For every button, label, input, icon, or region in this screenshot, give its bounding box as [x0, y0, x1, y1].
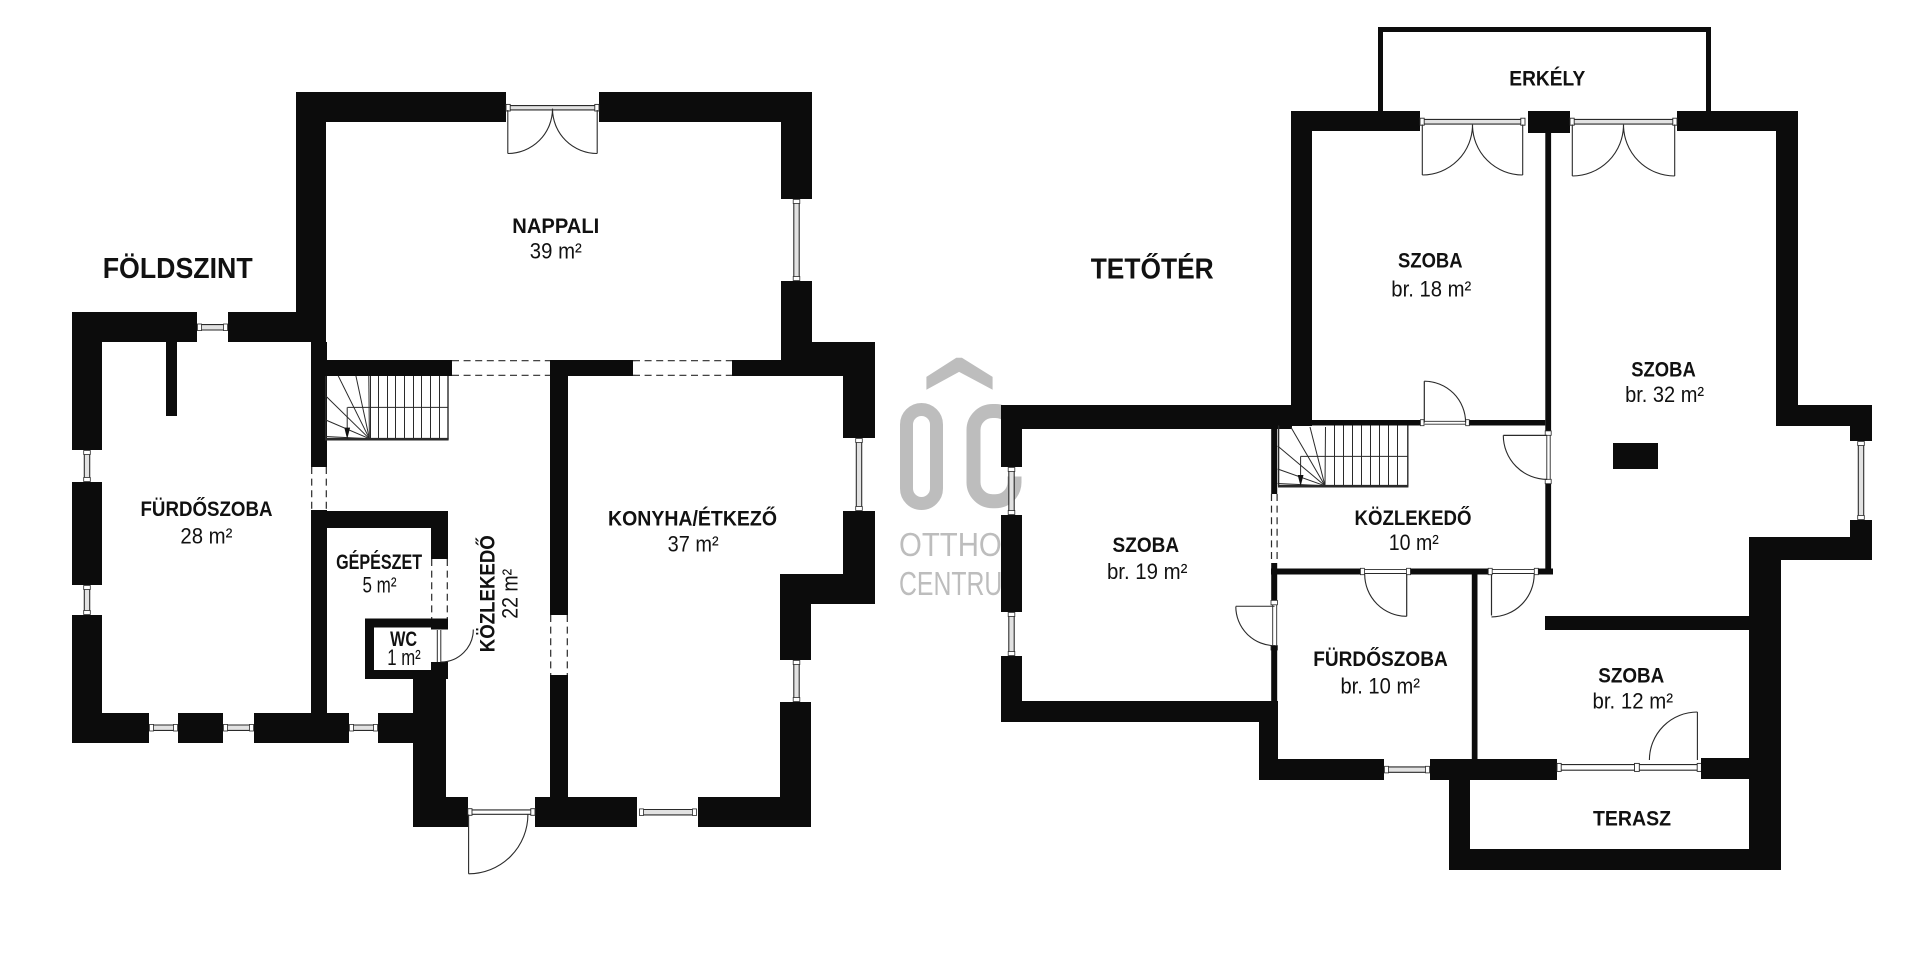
svg-text:KÖZLEKEDŐ: KÖZLEKEDŐ	[477, 535, 500, 652]
svg-text:SZOBA: SZOBA	[1398, 250, 1463, 273]
svg-text:GÉPÉSZET: GÉPÉSZET	[336, 551, 422, 574]
svg-text:br. 32 m²: br. 32 m²	[1625, 382, 1704, 407]
svg-text:5 m²: 5 m²	[363, 573, 397, 598]
svg-text:NAPPALI: NAPPALI	[512, 215, 599, 238]
svg-text:SZOBA: SZOBA	[1631, 359, 1696, 382]
svg-text:28 m²: 28 m²	[180, 524, 232, 549]
svg-text:KONYHA/ÉTKEZŐ: KONYHA/ÉTKEZŐ	[608, 508, 777, 531]
svg-text:br. 12 m²: br. 12 m²	[1593, 688, 1674, 713]
svg-text:KÖZLEKEDŐ: KÖZLEKEDŐ	[1355, 507, 1472, 530]
svg-text:ERKÉLY: ERKÉLY	[1509, 67, 1585, 90]
svg-text:FÜRDŐSZOBA: FÜRDŐSZOBA	[1313, 648, 1448, 671]
svg-text:SZOBA: SZOBA	[1113, 534, 1180, 557]
svg-text:TERASZ: TERASZ	[1593, 808, 1671, 831]
svg-text:FÖLDSZINT: FÖLDSZINT	[103, 253, 254, 285]
svg-text:FÜRDŐSZOBA: FÜRDŐSZOBA	[141, 498, 273, 521]
svg-text:br. 10 m²: br. 10 m²	[1340, 674, 1420, 699]
svg-text:br. 18 m²: br. 18 m²	[1391, 276, 1471, 301]
svg-text:TETŐTÉR: TETŐTÉR	[1091, 253, 1214, 285]
svg-text:10 m²: 10 m²	[1389, 530, 1439, 555]
svg-text:37 m²: 37 m²	[668, 531, 719, 556]
svg-text:br. 19 m²: br. 19 m²	[1107, 559, 1188, 584]
svg-text:22 m²: 22 m²	[498, 569, 523, 619]
svg-text:SZOBA: SZOBA	[1598, 665, 1664, 688]
svg-text:39 m²: 39 m²	[530, 238, 582, 263]
svg-text:1 m²: 1 m²	[387, 645, 421, 670]
